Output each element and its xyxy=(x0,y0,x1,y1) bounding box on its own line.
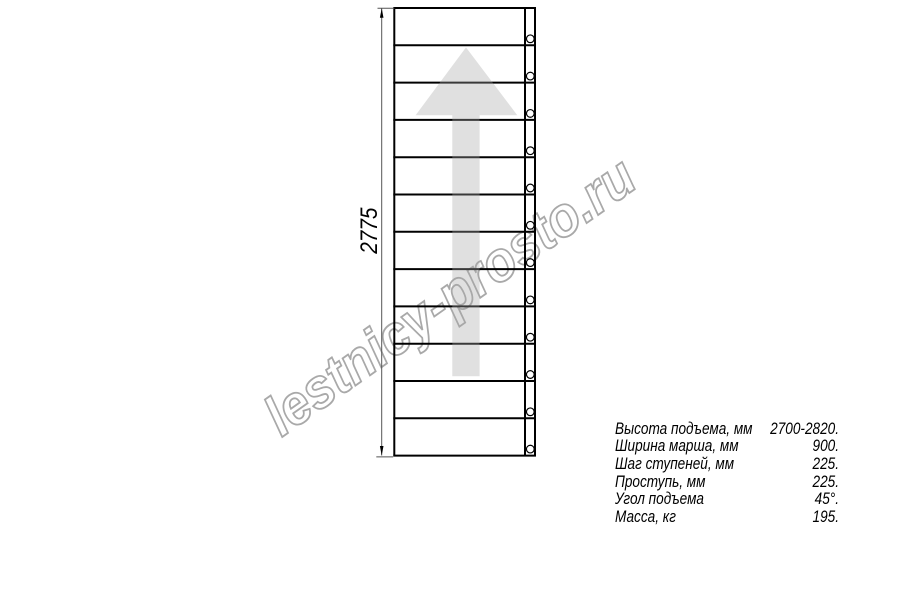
svg-text:2775: 2775 xyxy=(356,207,383,255)
svg-text:lestnicy-prosto.ru: lestnicy-prosto.ru xyxy=(252,144,647,447)
